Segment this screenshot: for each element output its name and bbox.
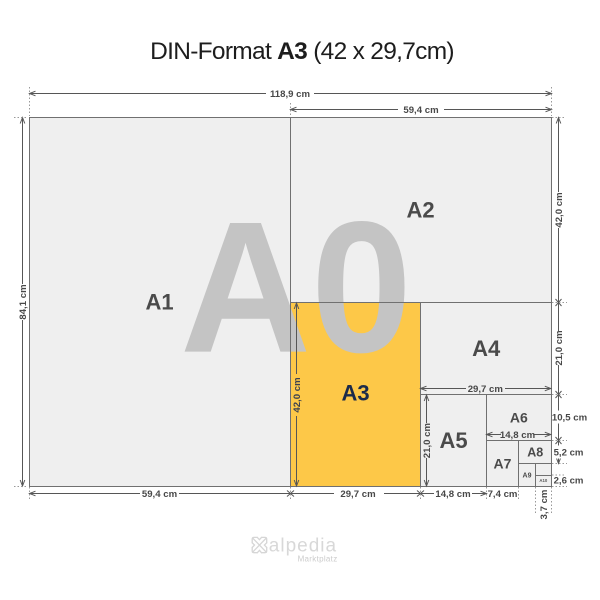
svg-text:21,0 cm: 21,0 cm bbox=[422, 423, 433, 458]
svg-text:A1: A1 bbox=[145, 289, 173, 314]
svg-text:A3: A3 bbox=[341, 381, 369, 406]
svg-text:29,7 cm: 29,7 cm bbox=[340, 489, 375, 500]
svg-text:42,0 cm: 42,0 cm bbox=[554, 192, 565, 227]
svg-text:A2: A2 bbox=[406, 197, 434, 222]
svg-text:84,1 cm: 84,1 cm bbox=[18, 284, 29, 319]
svg-text:14,8 cm: 14,8 cm bbox=[500, 430, 535, 441]
svg-text:118,9 cm: 118,9 cm bbox=[270, 89, 310, 100]
svg-text:21,0 cm: 21,0 cm bbox=[554, 330, 565, 365]
svg-text:7,4 cm: 7,4 cm bbox=[488, 489, 518, 500]
svg-text:10,5 cm: 10,5 cm bbox=[552, 413, 587, 424]
svg-text:A8: A8 bbox=[527, 446, 543, 460]
svg-text:14,8 cm: 14,8 cm bbox=[435, 489, 470, 500]
svg-text:DIN-Format A3 (42 x 29,7cm): DIN-Format A3 (42 x 29,7cm) bbox=[150, 38, 454, 65]
svg-text:2,6 cm: 2,6 cm bbox=[554, 476, 584, 487]
svg-text:59,4 cm: 59,4 cm bbox=[142, 489, 177, 500]
svg-text:A4: A4 bbox=[472, 336, 501, 361]
svg-text:A5: A5 bbox=[439, 428, 467, 453]
svg-text:Marktplatz: Marktplatz bbox=[298, 555, 338, 564]
svg-text:59,4 cm: 59,4 cm bbox=[403, 105, 438, 116]
svg-text:A9: A9 bbox=[523, 472, 532, 479]
svg-text:A7: A7 bbox=[494, 455, 512, 471]
svg-text:alpedia: alpedia bbox=[269, 536, 337, 557]
svg-text:5,2 cm: 5,2 cm bbox=[554, 448, 584, 459]
svg-text:A10: A10 bbox=[539, 478, 547, 483]
svg-text:29,7 cm: 29,7 cm bbox=[468, 384, 503, 395]
svg-text:3,7 cm: 3,7 cm bbox=[539, 490, 550, 520]
svg-text:42,0 cm: 42,0 cm bbox=[292, 377, 303, 412]
svg-text:A6: A6 bbox=[510, 410, 528, 426]
